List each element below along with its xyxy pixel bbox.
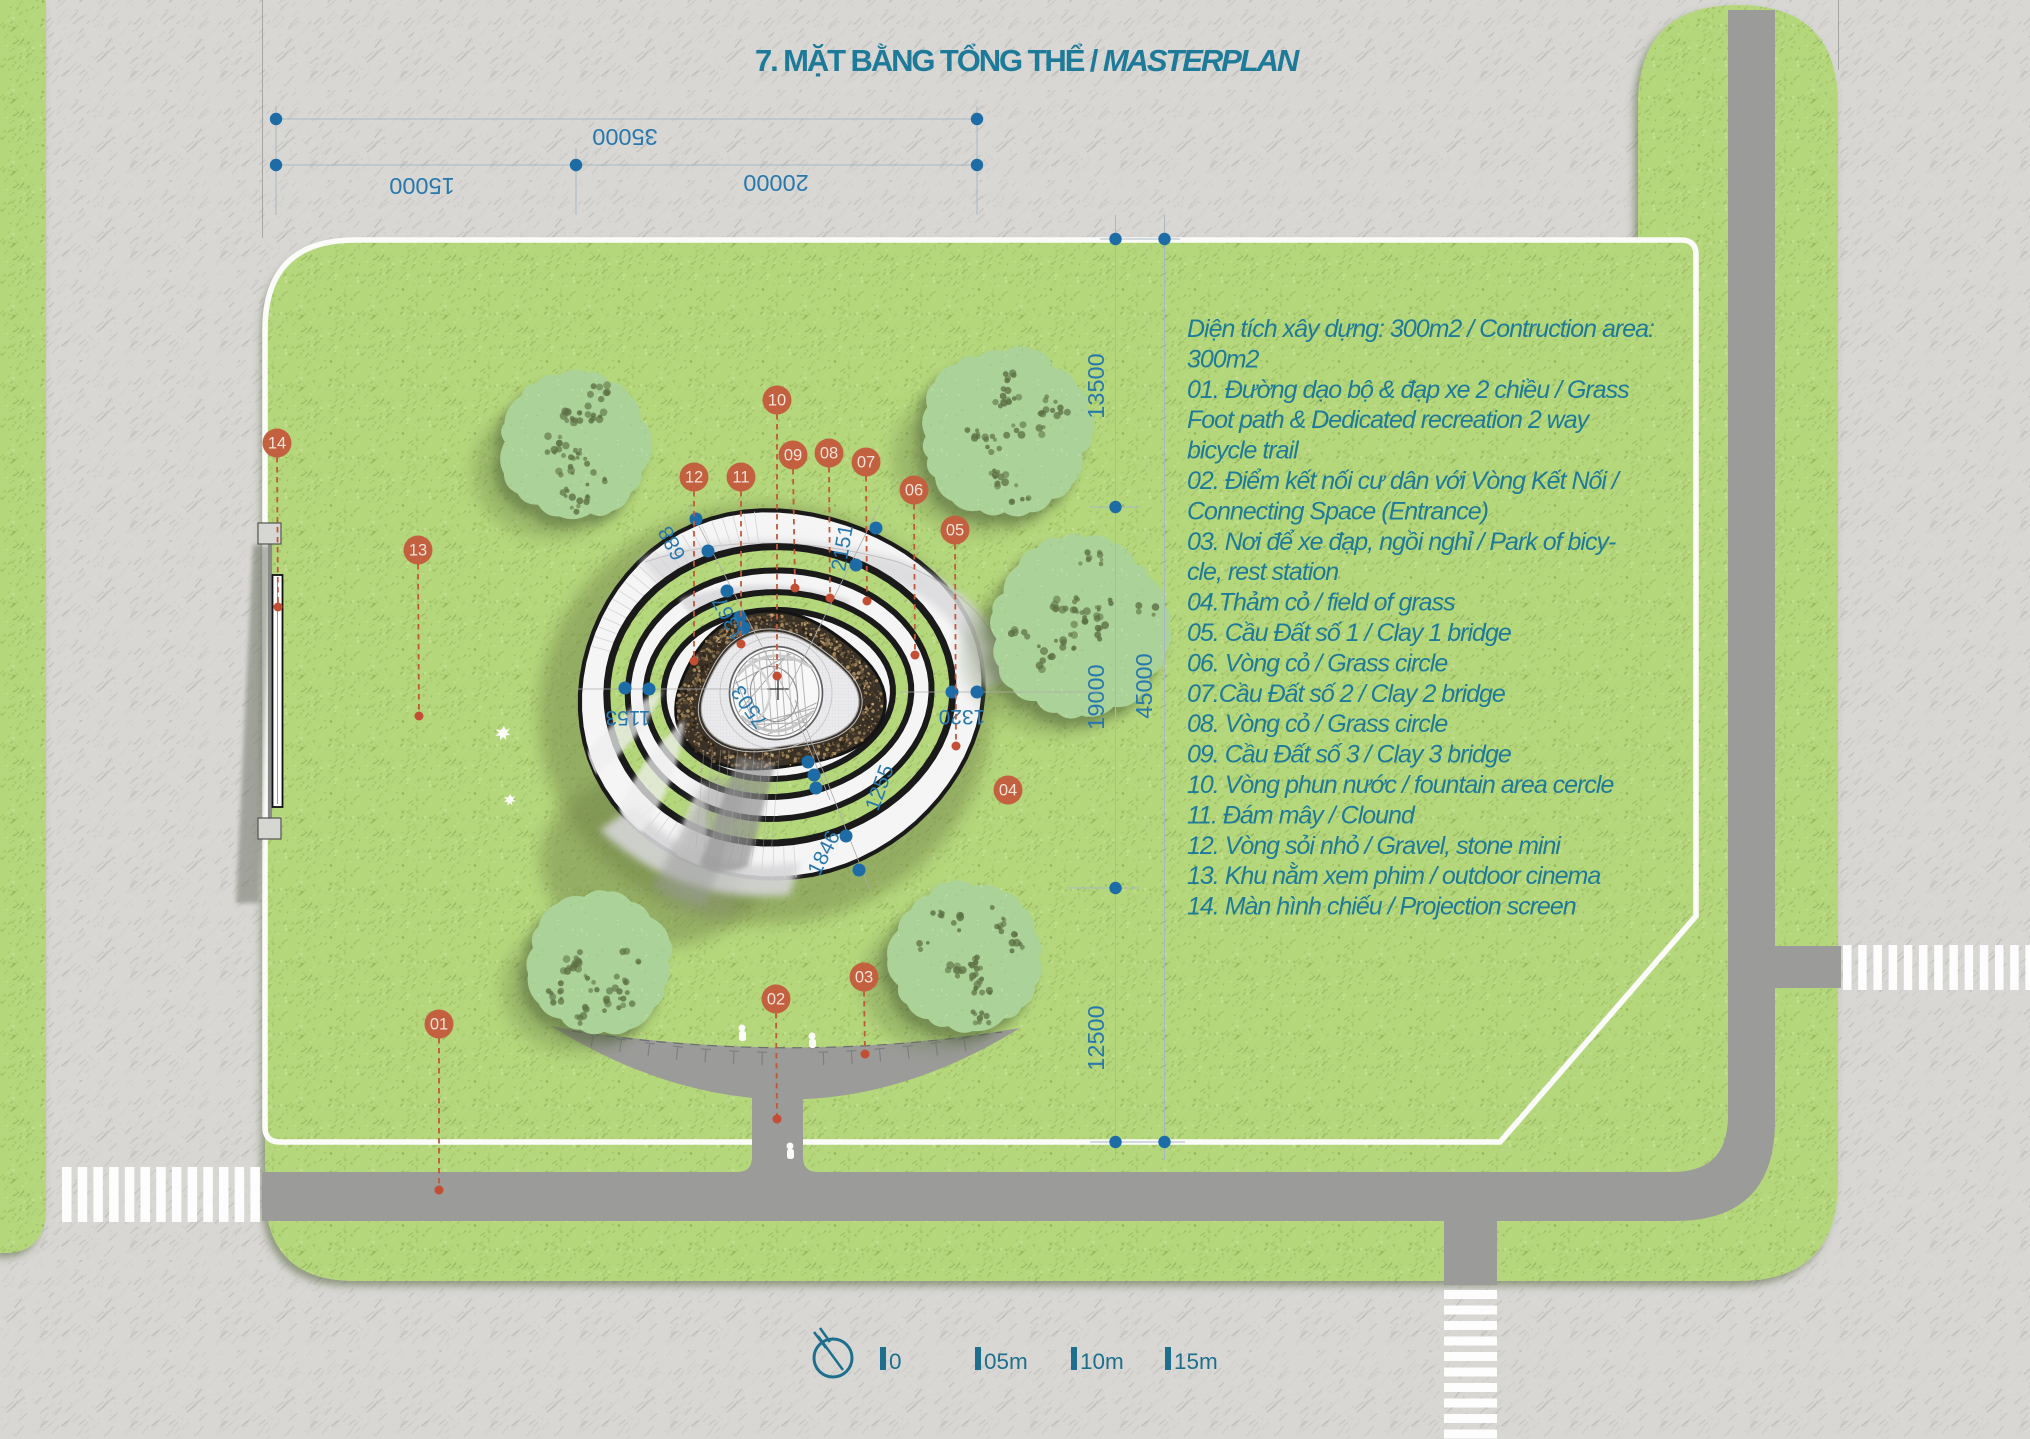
svg-text:300m2: 300m2 — [1187, 345, 1260, 373]
svg-text:07.Cầu Đất số 2 / Clay 2 bridg: 07.Cầu Đất số 2 / Clay 2 bridge — [1187, 680, 1505, 708]
svg-text:03: 03 — [855, 969, 873, 987]
svg-text:cle, rest station: cle, rest station — [1187, 558, 1338, 586]
svg-text:07: 07 — [857, 454, 875, 472]
svg-text:14. Màn hình chiếu / Projectio: 14. Màn hình chiếu / Projection screen — [1187, 893, 1576, 921]
svg-text:10: 10 — [768, 392, 786, 410]
svg-text:02. Điểm kết nối cư dân với Vò: 02. Điểm kết nối cư dân với Vòng Kết Nối… — [1187, 467, 1622, 495]
svg-text:15000: 15000 — [389, 173, 454, 199]
svg-text:45000: 45000 — [1131, 653, 1157, 718]
svg-text:15m: 15m — [1174, 1349, 1218, 1374]
svg-text:7. MẶT BẰNG TỔNG THỂ / MASTERP: 7. MẶT BẰNG TỔNG THỂ / MASTERPLAN — [755, 42, 1300, 78]
svg-text:09. Cầu Đất số 3 / Clay 3 brid: 09. Cầu Đất số 3 / Clay 3 bridge — [1187, 741, 1511, 769]
svg-text:03. Nơi để xe đạp, ngồi nghỉ /: 03. Nơi để xe đạp, ngồi nghỉ / Park of b… — [1187, 528, 1616, 556]
svg-text:08: 08 — [820, 445, 838, 463]
svg-text:12: 12 — [685, 469, 703, 487]
svg-text:1153: 1153 — [605, 706, 650, 729]
svg-text:05. Cầu Đất số 1 / Clay 1 brid: 05. Cầu Đất số 1 / Clay 1 bridge — [1187, 619, 1511, 647]
svg-text:13: 13 — [409, 542, 427, 560]
svg-text:01. Đường dạo bộ & đạp xe 2 c: 01. Đường dạo bộ & đạp xe 2 chiều / Gras… — [1187, 376, 1629, 404]
svg-text:Diện tích xây dựng: 300m2 / Co: Diện tích xây dựng: 300m2 / Contruction … — [1187, 315, 1654, 343]
svg-text:05: 05 — [946, 522, 964, 540]
svg-text:02: 02 — [767, 991, 785, 1009]
svg-text:08. Vòng cỏ / Grass circle: 08. Vòng cỏ / Grass circle — [1187, 710, 1447, 738]
svg-text:12. Vòng sỏi nhỏ / Gravel, sto: 12. Vòng sỏi nhỏ / Gravel, stone mini — [1187, 832, 1562, 860]
svg-text:Connecting Space (Entrance): Connecting Space (Entrance) — [1187, 497, 1488, 525]
svg-text:10m: 10m — [1080, 1349, 1124, 1374]
svg-text:12500: 12500 — [1083, 1005, 1109, 1070]
svg-text:09: 09 — [784, 447, 802, 465]
svg-text:bicycle trail: bicycle trail — [1187, 437, 1300, 465]
svg-text:13500: 13500 — [1083, 353, 1109, 418]
svg-text:35000: 35000 — [592, 124, 657, 150]
svg-text:Foot path & Dedicated recreati: Foot path & Dedicated recreation 2 way — [1187, 406, 1591, 434]
svg-text:01: 01 — [430, 1016, 448, 1034]
svg-text:0: 0 — [889, 1349, 902, 1374]
svg-text:10. Vòng phun nước / fountain: 10. Vòng phun nước / fountain area cercl… — [1187, 771, 1613, 799]
svg-text:11. Đám mây / Clound: 11. Đám mây / Clound — [1187, 801, 1416, 829]
svg-text:19000: 19000 — [1083, 664, 1109, 729]
svg-text:04: 04 — [999, 782, 1017, 800]
svg-text:1320: 1320 — [939, 705, 986, 728]
svg-text:04.Thảm cỏ / field of grass: 04.Thảm cỏ / field of grass — [1187, 589, 1455, 617]
svg-text:13. Khu nằm xem phim / outdoor: 13. Khu nằm xem phim / outdoor cinema — [1187, 861, 1601, 890]
svg-text:05m: 05m — [984, 1349, 1028, 1374]
svg-text:20000: 20000 — [743, 170, 808, 196]
svg-text:06. Vòng cỏ / Grass circle: 06. Vòng cỏ / Grass circle — [1187, 649, 1447, 677]
svg-text:11: 11 — [732, 469, 749, 487]
svg-text:14: 14 — [268, 435, 286, 453]
svg-text:06: 06 — [905, 482, 923, 500]
